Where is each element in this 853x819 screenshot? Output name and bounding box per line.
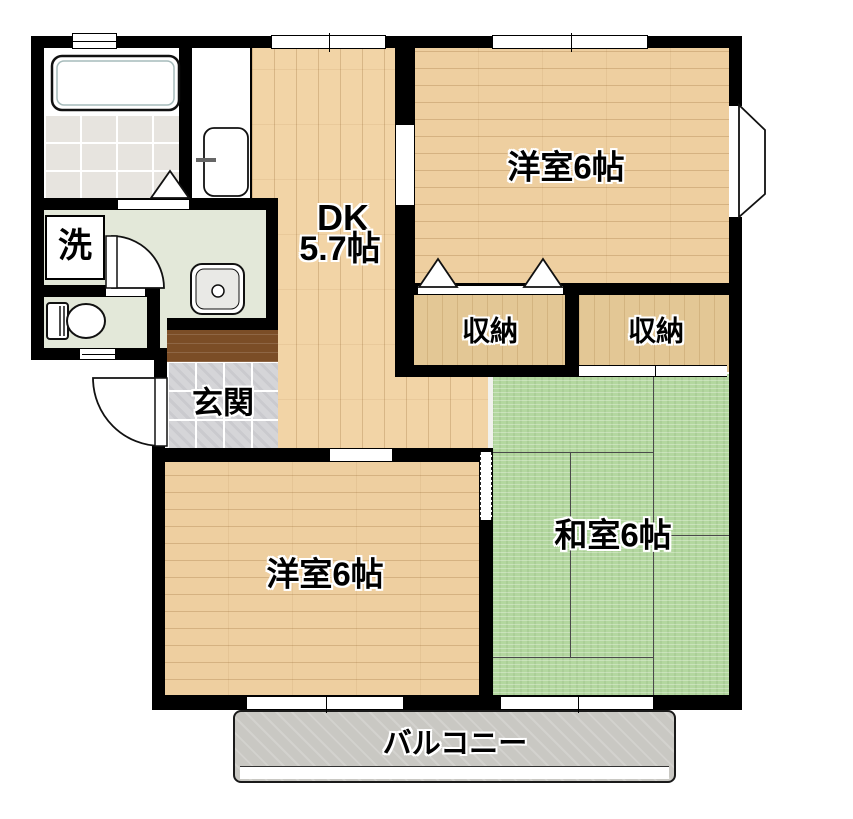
entrance-door-leaf [155,378,167,446]
washroom-door-leaf [106,236,117,288]
room-label-closet-left: 収納 [462,316,518,345]
washroom-door-swing [112,236,164,288]
closet-bifold-door-icon [419,259,457,287]
room-label-genkan: 玄関 [192,388,254,421]
bathroom-folding-door-icon [151,171,189,198]
room-label-laundry: 洗 [58,229,92,265]
fixtures-layer [0,0,853,819]
closet-bifold-door-icon [524,259,562,287]
bay-window [739,105,765,217]
toilet-bowl [67,304,105,338]
room-label-western-bottom: 洋室6帖 [266,558,383,593]
room-label-japanese: 和室6帖 [554,519,671,554]
entrance-door-swing [93,378,161,446]
bathtub [52,56,179,110]
floorplan-canvas: 洋室6帖 DK 5.7帖 収納 収納 和室6帖 洋室6帖 玄関 洗 バルコニー [0,0,853,819]
room-label-western-top: 洋室6帖 [507,151,624,186]
room-label-balcony: バルコニー [383,729,527,759]
vanity-drain-icon [212,285,224,297]
toilet-tank [47,303,68,339]
room-label-closet-right: 収納 [628,316,684,345]
room-label-dk-line2: 5.7帖 [299,232,380,268]
